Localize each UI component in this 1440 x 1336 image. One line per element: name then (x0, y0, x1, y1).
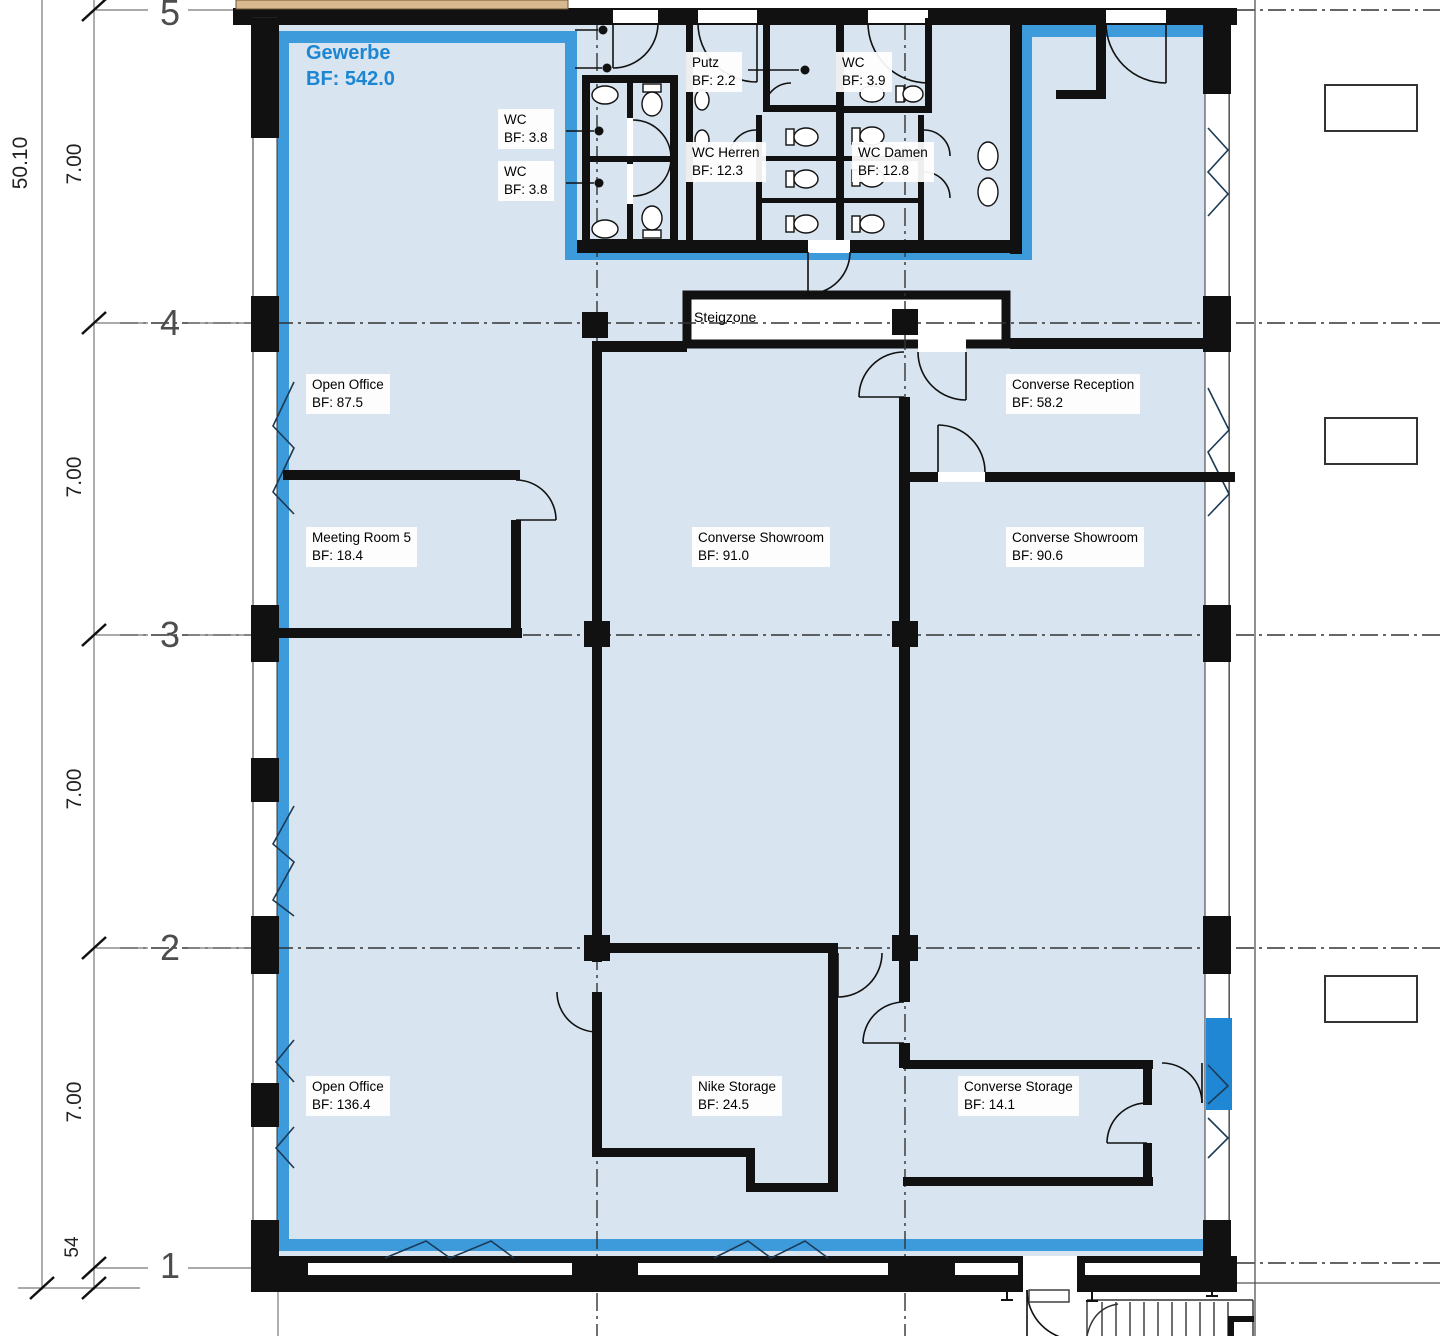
room-label-converse-showroom-1: Converse Showroom BF: 91.0 (692, 527, 830, 567)
room-label-putz: Putz BF: 2.2 (686, 52, 742, 92)
grid-axis-5: 5 (150, 0, 190, 34)
floor-plan: Gewerbe BF: 542.0 Open Office BF: 87.5 M… (0, 0, 1440, 1336)
room-label-wc-a: WC BF: 3.8 (498, 109, 554, 149)
stair-side-wall (1228, 1316, 1254, 1336)
lease-name: Gewerbe (306, 40, 395, 66)
dim-bay-2-1: 7.00 (63, 1057, 87, 1147)
room-area: BF: 3.9 (842, 72, 886, 90)
room-label-converse-showroom-2: Converse Showroom BF: 90.6 (1006, 527, 1144, 567)
room-name: Open Office (312, 376, 384, 394)
room-name: Converse Showroom (698, 529, 824, 547)
dim-overall: 50.10 (9, 118, 33, 208)
room-name: Converse Reception (1012, 376, 1134, 394)
lease-area-label: Gewerbe BF: 542.0 (306, 40, 395, 92)
room-area: BF: 87.5 (312, 394, 384, 412)
room-area: BF: 18.4 (312, 547, 411, 565)
room-area: BF: 14.1 (964, 1096, 1073, 1114)
zone-name: Steigzone (694, 308, 756, 326)
grid-axis-3: 3 (150, 614, 190, 656)
room-area: BF: 12.8 (858, 162, 928, 180)
room-label-converse-reception: Converse Reception BF: 58.2 (1006, 374, 1140, 414)
room-label-wc-b: WC BF: 3.8 (498, 161, 554, 201)
grid-axis-1: 1 (150, 1245, 190, 1287)
room-label-nike-storage: Nike Storage BF: 24.5 (692, 1076, 782, 1116)
room-label-open-office-2: Open Office BF: 136.4 (306, 1076, 390, 1116)
dim-bay-5-4: 7.00 (63, 119, 87, 209)
room-area: BF: 3.8 (504, 129, 548, 147)
room-area: BF: 12.3 (692, 162, 760, 180)
steigzone-label: Steigzone (691, 308, 759, 326)
room-label-wc-damen: WC Damen BF: 12.8 (852, 142, 934, 182)
room-name: Nike Storage (698, 1078, 776, 1096)
room-name: WC (842, 54, 886, 72)
room-label-meeting-room-5: Meeting Room 5 BF: 18.4 (306, 527, 417, 567)
dim-bay-3-2: 7.00 (63, 744, 87, 834)
dim-bay-4-3: 7.00 (63, 432, 87, 522)
room-name: Converse Showroom (1012, 529, 1138, 547)
room-area: BF: 91.0 (698, 547, 824, 565)
room-name: WC Damen (858, 144, 928, 162)
room-label-wc-herren: WC Herren BF: 12.3 (686, 142, 766, 182)
room-area: BF: 3.8 (504, 181, 548, 199)
room-area: BF: 90.6 (1012, 547, 1138, 565)
room-area: BF: 136.4 (312, 1096, 384, 1114)
room-label-converse-storage: Converse Storage BF: 14.1 (958, 1076, 1079, 1116)
room-name: Open Office (312, 1078, 384, 1096)
room-name: Converse Storage (964, 1078, 1073, 1096)
room-name: Meeting Room 5 (312, 529, 411, 547)
plan-linework (0, 0, 1440, 1336)
room-name: WC (504, 163, 548, 181)
grid-axis-2: 2 (150, 927, 190, 969)
glazing-panel (1206, 1018, 1232, 1110)
room-name: Putz (692, 54, 736, 72)
room-label-wc-39: WC BF: 3.9 (836, 52, 892, 92)
room-area: BF: 24.5 (698, 1096, 776, 1114)
room-name: WC (504, 111, 548, 129)
grid-axis-4: 4 (150, 302, 190, 344)
room-area: BF: 2.2 (692, 72, 736, 90)
room-name: WC Herren (692, 144, 760, 162)
room-area: BF: 58.2 (1012, 394, 1134, 412)
room-label-open-office-1: Open Office BF: 87.5 (306, 374, 390, 414)
lease-area: BF: 542.0 (306, 66, 395, 92)
dim-base-offset: 54 (62, 1217, 84, 1277)
